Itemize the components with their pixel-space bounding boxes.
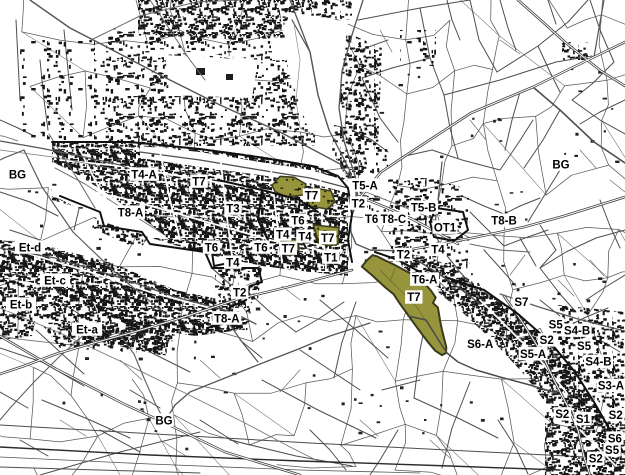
svg-text:T7: T7 [305,190,318,202]
svg-text:BG: BG [155,415,172,427]
svg-text:T7: T7 [282,243,295,255]
svg-text:BG: BG [9,169,26,181]
svg-text:Et-b: Et-b [10,299,32,311]
svg-text:S5: S5 [577,341,592,353]
svg-text:T6: T6 [254,242,267,254]
svg-text:T4-A: T4-A [131,169,157,181]
svg-text:T2: T2 [352,198,365,210]
svg-text:S4-B: S4-B [585,357,611,369]
svg-text:S5: S5 [605,445,620,457]
svg-text:T4: T4 [431,244,445,256]
svg-text:T2: T2 [397,250,410,262]
svg-text:S5-A: S5-A [520,349,546,361]
svg-text:Et-a: Et-a [76,324,98,336]
svg-text:T7: T7 [192,176,205,188]
svg-text:T8-B: T8-B [491,215,517,227]
svg-text:T8-A: T8-A [214,313,240,325]
svg-text:T6: T6 [291,215,304,227]
svg-text:S1: S1 [576,414,591,426]
svg-text:S5: S5 [549,320,564,332]
svg-text:T5-B: T5-B [411,202,437,214]
svg-text:BG: BG [552,159,569,171]
svg-text:T2: T2 [233,287,246,299]
svg-text:T6-A: T6-A [412,274,438,286]
svg-text:S2: S2 [540,335,554,347]
svg-text:T6: T6 [205,242,218,254]
svg-text:S7: S7 [514,297,528,309]
svg-text:S4-B: S4-B [564,325,590,337]
svg-text:T8-A: T8-A [118,207,144,219]
svg-text:T3: T3 [226,203,239,215]
svg-text:T4: T4 [276,229,290,241]
svg-text:T4: T4 [298,231,312,243]
svg-text:S6-A: S6-A [467,339,493,351]
svg-text:Et-d: Et-d [19,242,41,254]
svg-text:T1: T1 [324,252,338,264]
svg-text:T5-A: T5-A [352,180,378,192]
svg-text:T4: T4 [226,257,240,269]
svg-text:T7: T7 [321,233,334,245]
svg-text:Et-c: Et-c [44,275,66,287]
svg-text:S2: S2 [555,409,569,421]
svg-text:OT1: OT1 [434,222,457,234]
svg-text:S2: S2 [609,410,623,422]
svg-text:T7: T7 [407,292,420,304]
svg-text:S3-A: S3-A [598,381,624,393]
svg-text:T8-C: T8-C [381,214,407,226]
svg-text:T6: T6 [365,214,378,226]
svg-text:S2: S2 [589,454,603,466]
